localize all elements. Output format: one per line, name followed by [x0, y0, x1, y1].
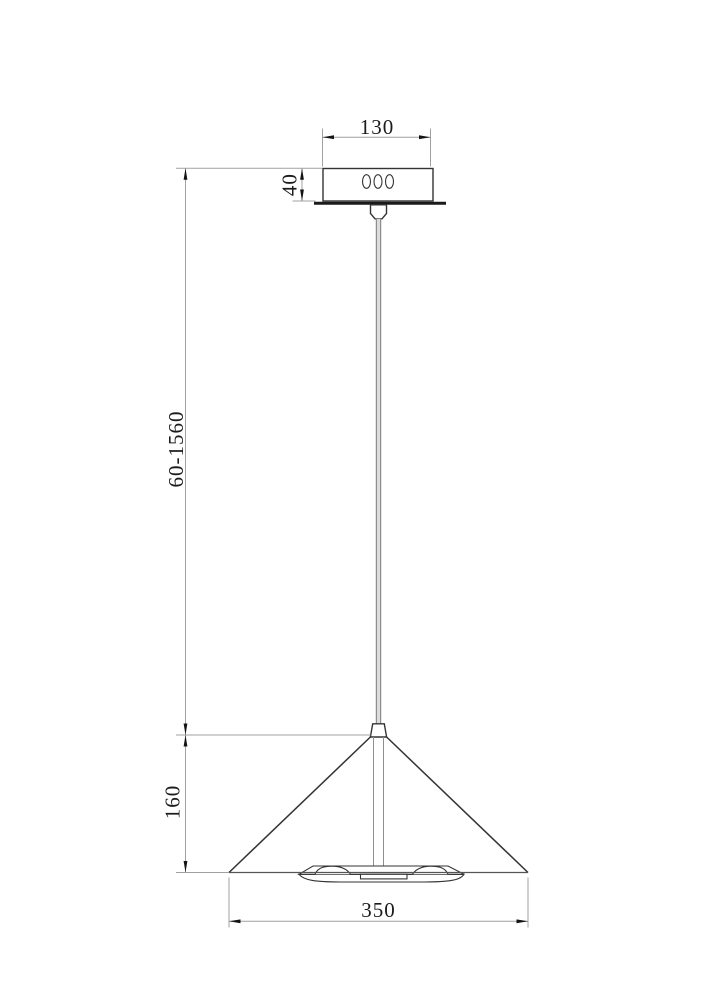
- canopy: [314, 169, 446, 219]
- canopy-height-label: 40: [278, 173, 302, 196]
- shade-right-slope: [387, 737, 528, 873]
- diffuser-lens: [299, 866, 464, 882]
- cone-shade: [229, 724, 528, 882]
- apex-ferrule: [370, 724, 386, 737]
- cable-grip: [371, 205, 387, 219]
- dimension-suspension-length: 60-1560: [164, 168, 323, 735]
- suspension-length-label: 60-1560: [164, 411, 188, 488]
- suspension-cable: [376, 219, 380, 725]
- dimension-shade-diameter: 350: [229, 878, 528, 928]
- shade-height-label: 160: [161, 785, 185, 820]
- shade-diameter-label: 350: [361, 898, 396, 922]
- dimension-canopy-width: 130: [323, 115, 431, 167]
- dimension-shade-height: 160: [161, 735, 371, 873]
- dimension-canopy-height: 40: [278, 168, 316, 201]
- drawing-canvas: 130 40 60-1560 160: [0, 0, 707, 1000]
- canopy-vent-slots-icon: [363, 175, 394, 189]
- shade-left-slope: [229, 737, 370, 873]
- canopy-width-label: 130: [360, 115, 395, 139]
- pendant-lamp-technical-drawing: 130 40 60-1560 160: [0, 0, 707, 1000]
